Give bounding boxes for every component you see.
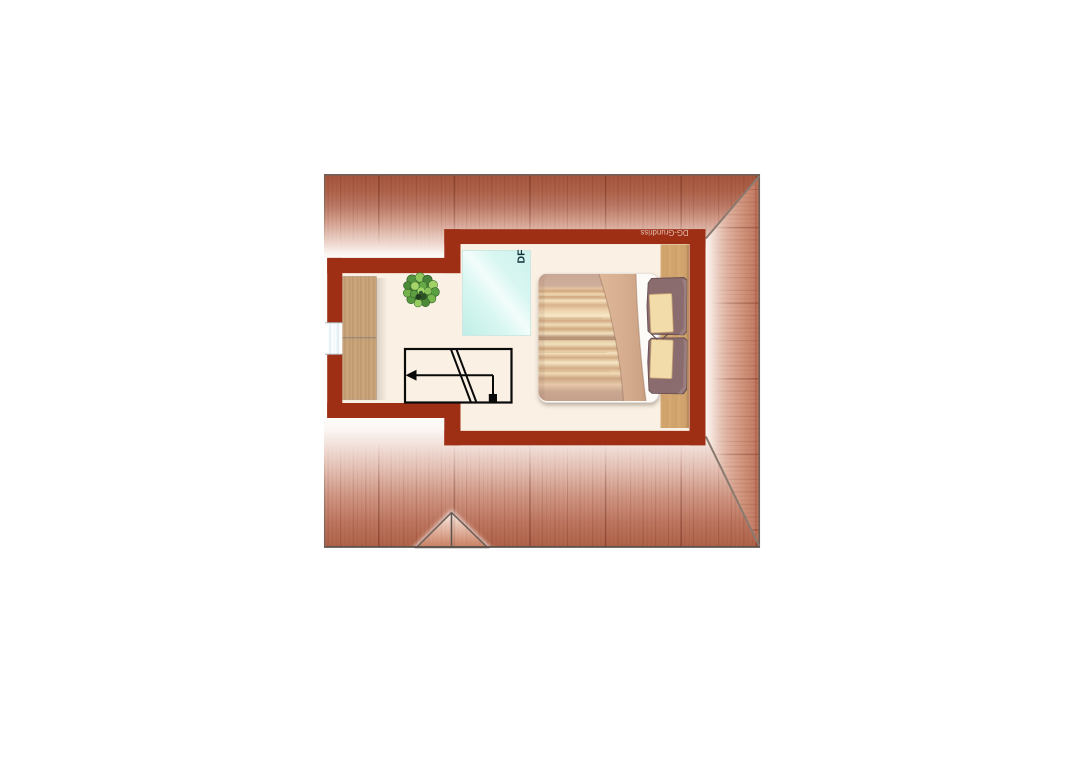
svg-text:DG-Grundriss: DG-Grundriss	[640, 228, 688, 237]
svg-text:DF: DF	[516, 249, 528, 264]
